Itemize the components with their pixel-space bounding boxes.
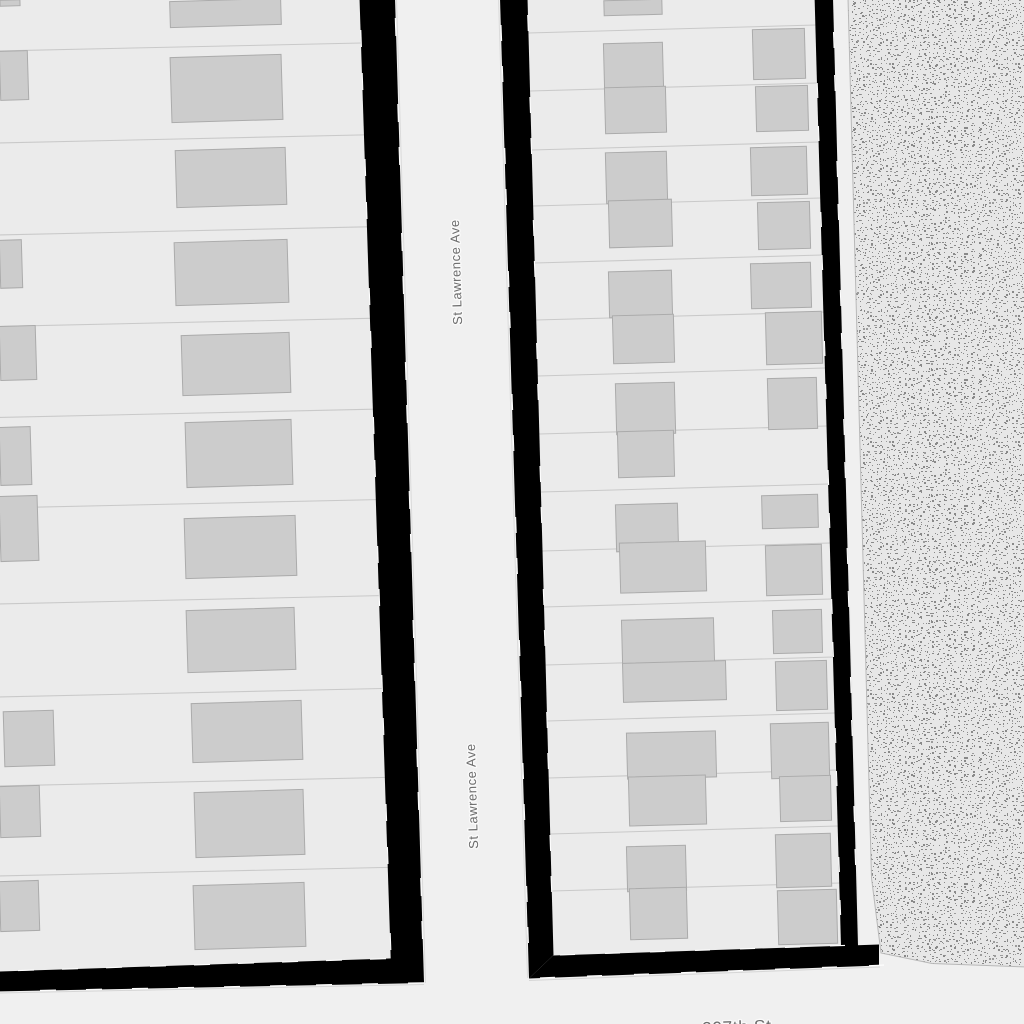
svg-text:St Lawrence Ave: St Lawrence Ave [447, 219, 465, 325]
svg-text:207th St: 207th St [702, 1016, 772, 1024]
svg-text:St Lawrence Ave: St Lawrence Ave [463, 743, 481, 849]
